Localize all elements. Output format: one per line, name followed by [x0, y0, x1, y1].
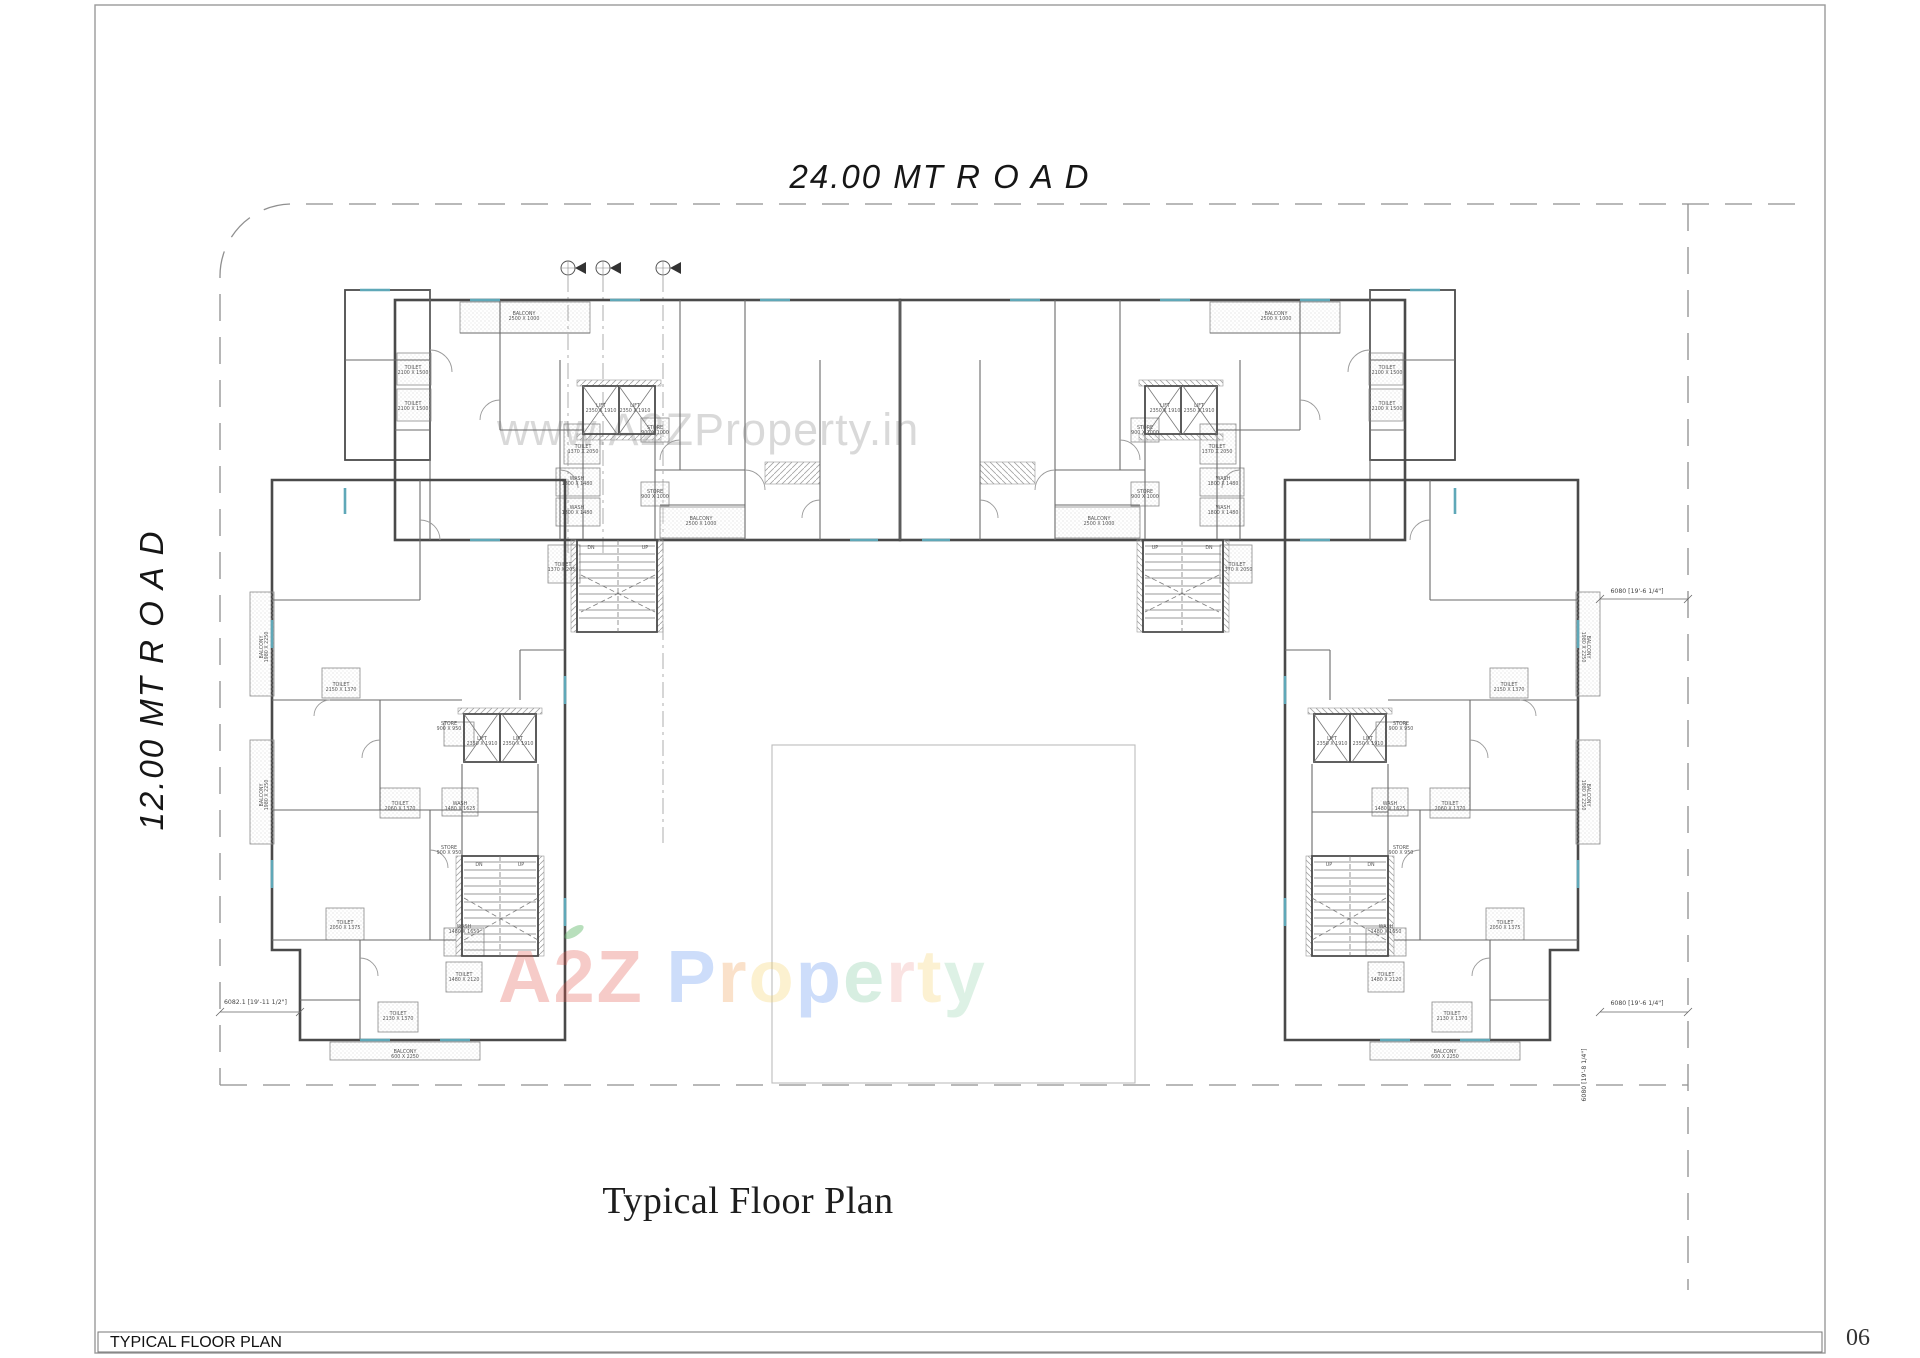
room-label: BALCONY1980 X 2250 [1580, 780, 1591, 811]
footer: TYPICAL FLOOR PLAN [98, 1332, 1822, 1352]
dimension-right-lower: 6080 [19'-6 1/4"] [1610, 1000, 1663, 1007]
room-label: UP [518, 862, 525, 868]
room-label: DN [475, 862, 483, 868]
room-label: BALCONY2500 X 1000 [1261, 311, 1292, 322]
dimension-right-vertical: 6080 [19'-8 1/4"] [1581, 1048, 1588, 1101]
page-number: 06 [1846, 1325, 1870, 1351]
road-label-left: 12.00 MT R O A D [133, 530, 170, 831]
room-label: BALCONY1980 X 2250 [259, 780, 270, 811]
floor-plan-canvas: www.A2ZProperty.in A2Z Property 6080 [19… [0, 0, 1920, 1358]
room-label: DN [1205, 545, 1213, 551]
room-label: DN [587, 545, 595, 551]
room-label: BALCONY2500 X 1000 [1084, 516, 1115, 527]
road-label-top: 24.00 MT R O A D [789, 158, 1091, 195]
room-label: BALCONY2500 X 1000 [509, 311, 540, 322]
dimension-left-lower: 6082.1 [19'-11 1/2"] [224, 999, 287, 1006]
room-label: BALCONY2500 X 1000 [686, 516, 717, 527]
room-label: BALCONY1980 X 2250 [259, 632, 270, 663]
page-title: Typical Floor Plan [602, 1180, 893, 1222]
room-label: UP [1152, 545, 1159, 551]
room-label: UP [642, 545, 649, 551]
svg-text:A2Z Property: A2Z Property [498, 935, 987, 1018]
watermark-colored: A2Z Property [498, 922, 987, 1018]
room-label: UP [1326, 862, 1333, 868]
footer-label: TYPICAL FLOOR PLAN [110, 1334, 282, 1351]
room-label: BALCONY600 X 2250 [1431, 1049, 1459, 1060]
room-label: BALCONY1980 X 2250 [1580, 632, 1591, 663]
dimension-right-upper: 6080 [19'-6 1/4"] [1610, 588, 1663, 595]
room-label: DN [1367, 862, 1375, 868]
room-label: BALCONY600 X 2250 [391, 1049, 419, 1060]
